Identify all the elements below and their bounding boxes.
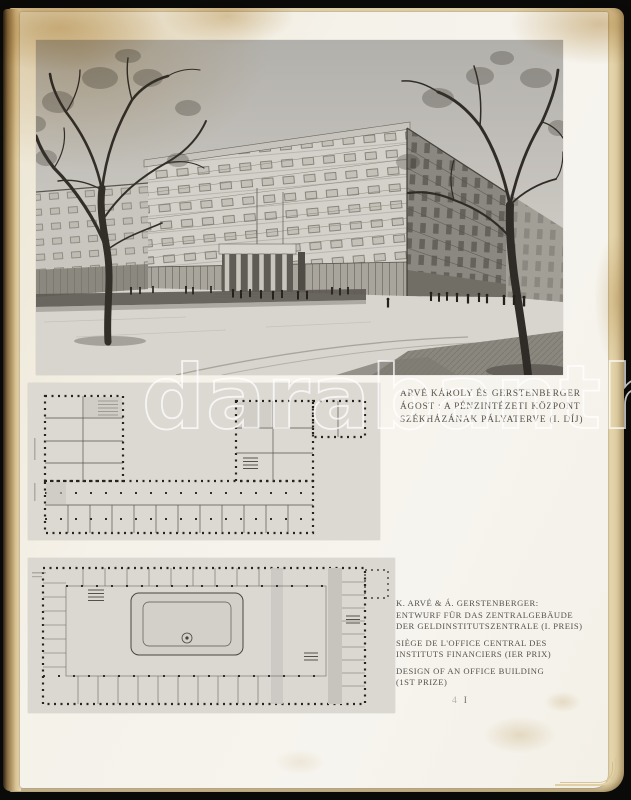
page-edge-lines [560,762,613,783]
floor-plan-ground-svg [28,558,395,713]
caption-hungarian: ARVÉ KÁROLY ÉS GERSTENBERGER ÁGOST : A P… [400,388,585,427]
book-page: ARVÉ KÁROLY ÉS GERSTENBERGER ÁGOST : A P… [20,12,608,788]
caption-hu-line2: ÁGOST : A PÉNZINTÉZETI KÖZPONT [400,401,585,414]
caption-fr-line1: SIÈGE DE L'OFFICE CENTRAL DES [396,638,591,650]
floor-plan-upper-svg [28,383,380,540]
perspective-drawing-svg [36,40,563,375]
caption-de-line1: K. ARVÉ & Á. GERSTENBERGER: [396,598,591,610]
caption-en-line1: DESIGN OF AN OFFICE BUILDING [396,666,591,678]
floor-plan-ground [28,558,395,713]
caption-hu-line3: SZÉKHÁZÁNAK PÁLYATERVE (I. DÍJ) [400,414,585,427]
plan-lightwell [271,568,283,704]
plan-central-hall [131,593,243,655]
caption-fr-line2: INSTITUTS FINANCIERS (IER PRIX) [396,649,591,661]
perspective-drawing [36,40,563,375]
floor-plan-upper [28,383,380,540]
caption-hu-line1: ARVÉ KÁROLY ÉS GERSTENBERGER [400,388,585,401]
caption-de-line3: DER GELDINSTITUTSZENTRALE (I. PREIS) [396,621,591,633]
caption-multilingual: K. ARVÉ & Á. GERSTENBERGER: ENTWURF FÜR … [396,593,591,694]
plan-corridor [328,568,342,704]
page-marker: 4I [452,696,467,706]
page-marker-left: 4 [452,696,457,706]
caption-en-line2: (1ST PRIZE) [396,677,591,689]
caption-de-line2: ENTWURF FÜR DAS ZENTRALGEBÄUDE [396,610,591,622]
book-binding-edge [3,9,21,791]
left-wing-building [36,183,148,297]
page-marker-right: I [464,696,467,706]
